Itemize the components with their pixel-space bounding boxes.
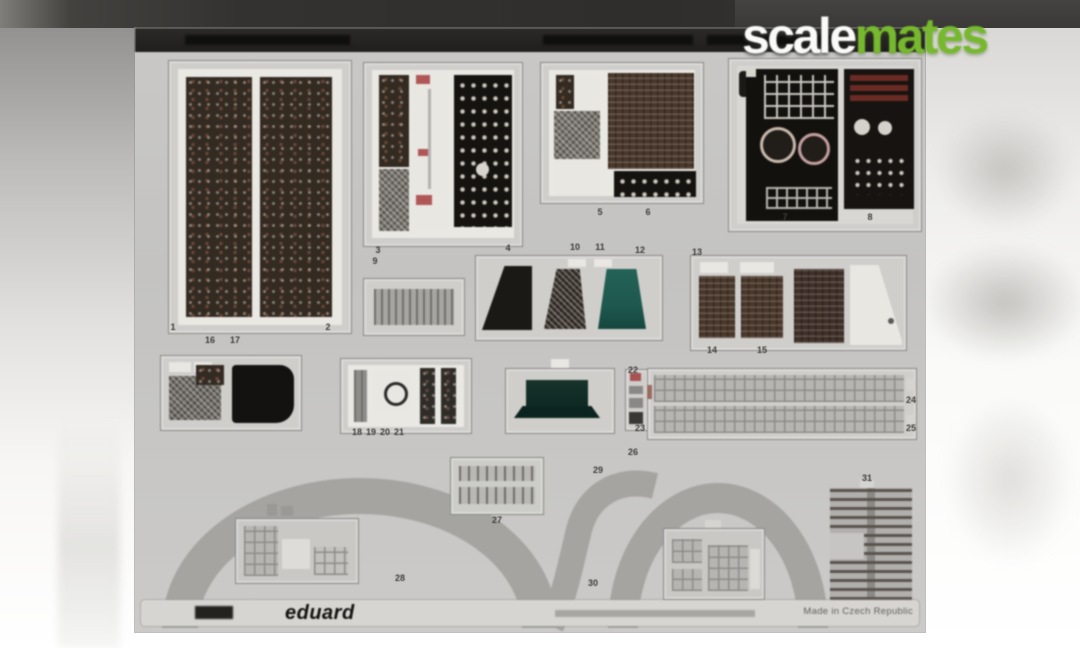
part-number-label: 5 [597, 207, 602, 217]
part-number-label: 26 [628, 447, 638, 457]
part-number-label: 15 [757, 345, 767, 355]
part-labels-layer: 1234567891011121314151617181920212223242… [135, 28, 925, 632]
part-number-label: 8 [867, 212, 872, 222]
part-number-label: 28 [395, 573, 405, 583]
part-number-label: 14 [707, 345, 717, 355]
logo-text-scale: scale [742, 8, 855, 64]
background-photo-smudge [945, 395, 1075, 565]
part-number-label: 24 [906, 395, 916, 405]
logo-text-mates: mates [855, 8, 987, 64]
part-number-label: 21 [394, 427, 404, 437]
part-number-label: 17 [230, 335, 240, 345]
part-number-label: 3 [375, 245, 380, 255]
part-number-label: 29 [593, 465, 603, 475]
part-number-label: 19 [366, 427, 376, 437]
part-number-label: 27 [492, 515, 502, 525]
photoetch-sheet-image[interactable]: eduard Made in Czech Republic 1234567891… [135, 28, 925, 632]
scalemates-logo[interactable]: scalemates [742, 10, 987, 64]
part-number-label: 25 [906, 423, 916, 433]
part-number-label: 1 [170, 322, 175, 332]
part-number-label: 4 [505, 243, 510, 253]
part-number-label: 7 [782, 212, 787, 222]
part-number-label: 18 [352, 427, 362, 437]
part-number-label: 22 [628, 365, 638, 375]
background-photo-smudge [935, 110, 1075, 230]
part-number-label: 12 [635, 245, 645, 255]
part-number-label: 11 [595, 242, 605, 252]
part-number-label: 10 [570, 242, 580, 252]
part-number-label: 23 [635, 423, 645, 433]
part-number-label: 9 [372, 256, 377, 266]
part-number-label: 6 [645, 207, 650, 217]
part-number-label: 2 [325, 322, 330, 332]
part-number-label: 20 [380, 427, 390, 437]
part-number-label: 13 [692, 247, 702, 257]
background-photo-smudge [925, 245, 1080, 360]
background-faint-object [58, 420, 120, 648]
part-number-label: 31 [862, 473, 872, 483]
part-number-label: 30 [588, 578, 598, 588]
part-number-label: 16 [205, 335, 215, 345]
